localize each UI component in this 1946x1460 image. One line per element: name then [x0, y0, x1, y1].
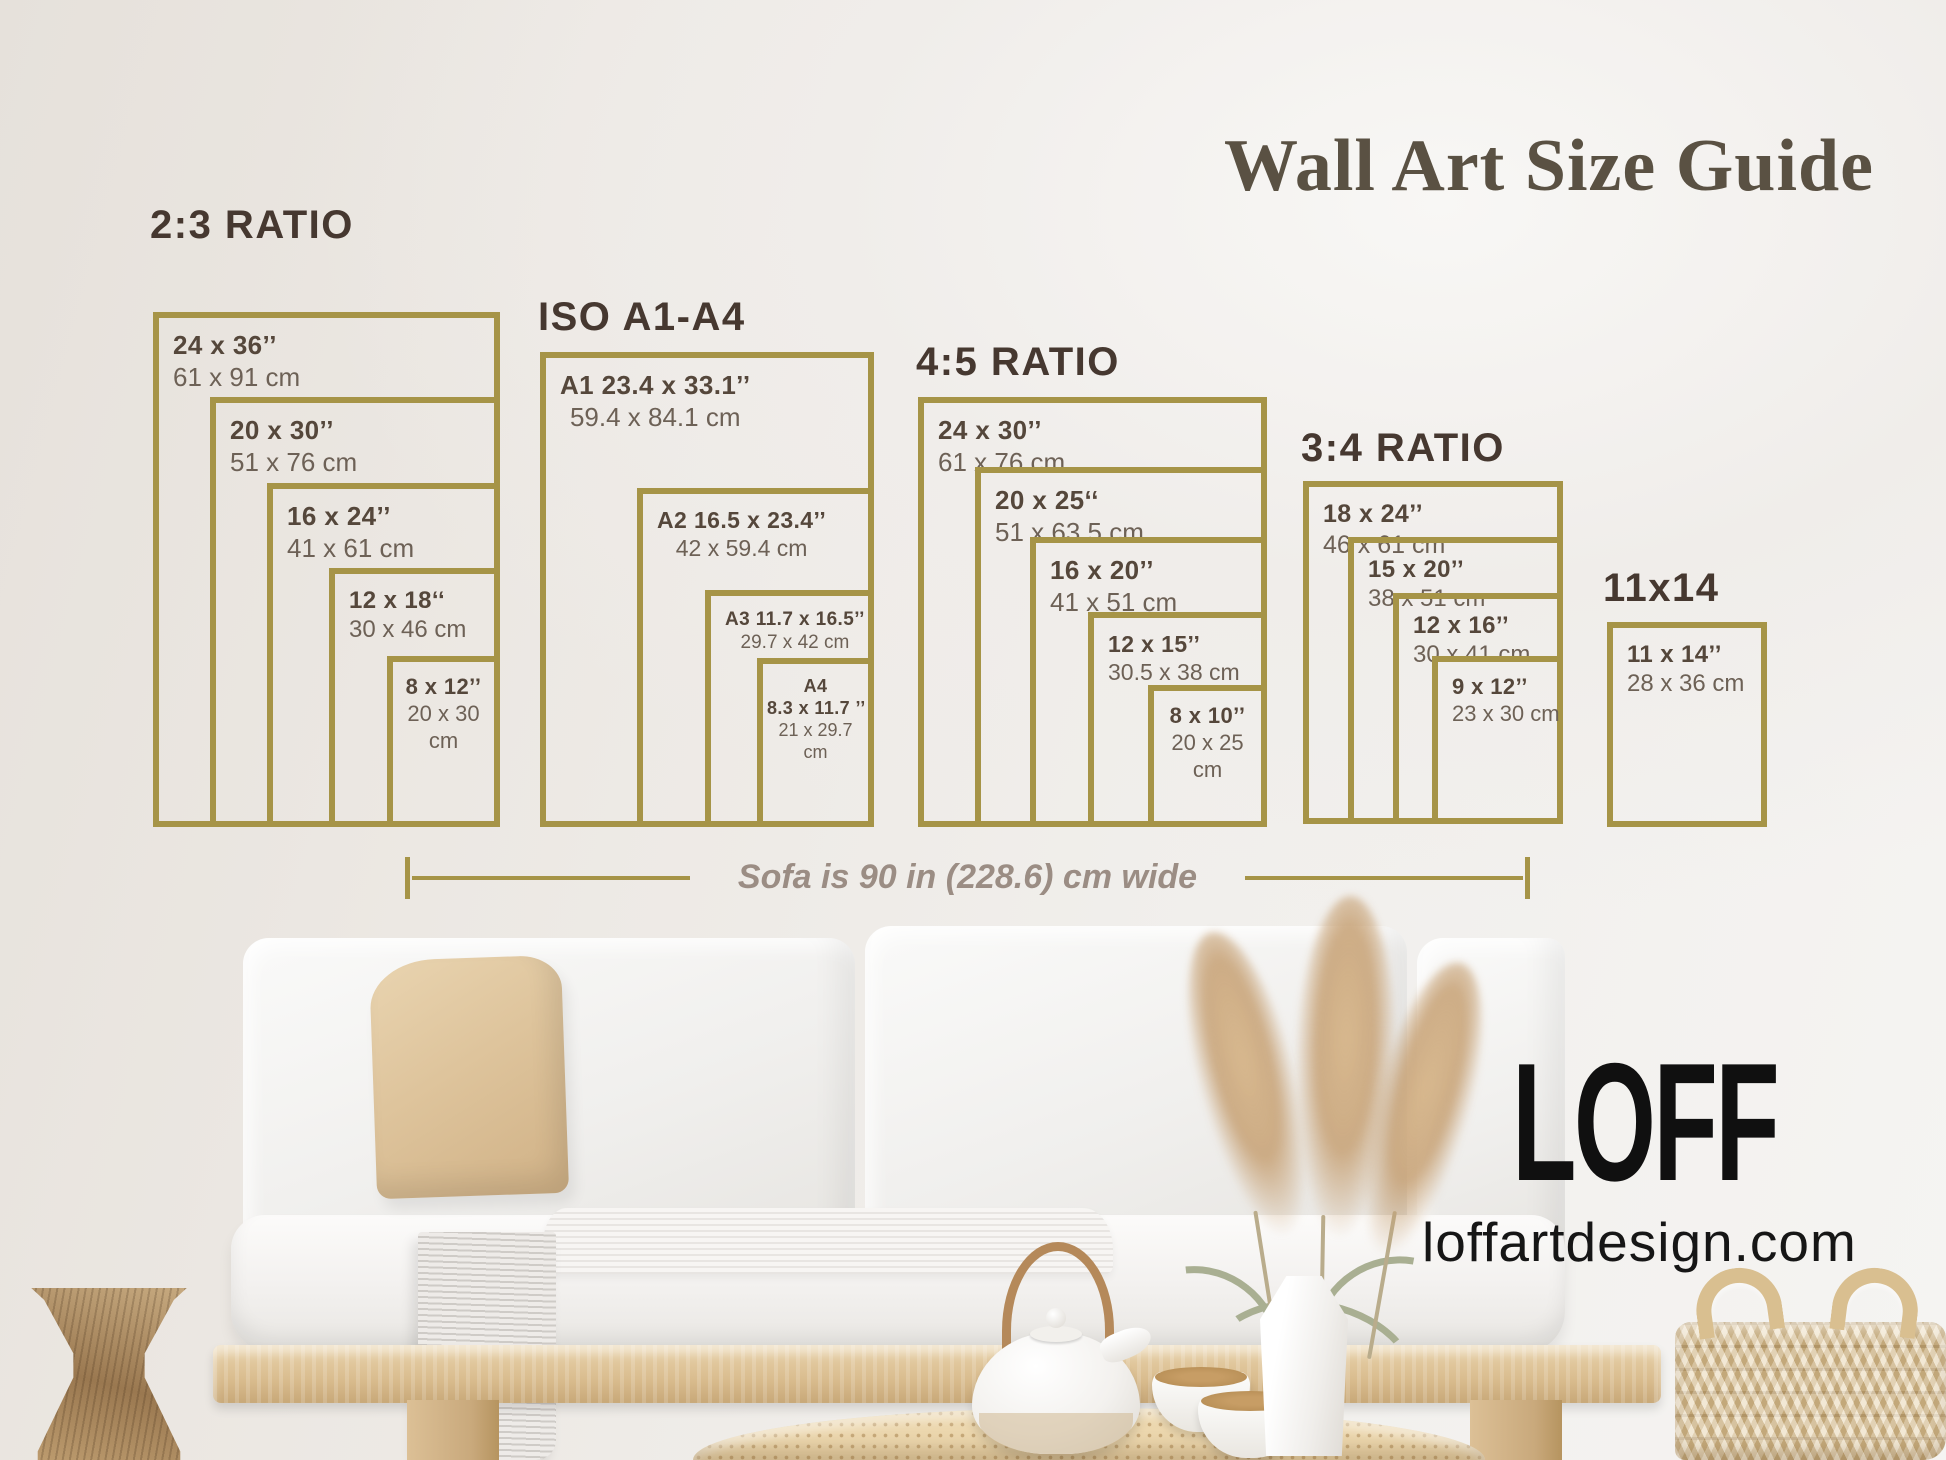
size-frame-label: 9 x 12’’23 x 30 cm [1438, 662, 1557, 740]
wall-art-size-guide-poster: Wall Art Size Guide 2:3 RATIO24 x 36’’61… [0, 0, 1946, 1460]
section-heading-3-4-ratio: 3:4 RATIO [1301, 426, 1505, 471]
size-frame-9-x-12: 9 x 12’’23 x 30 cm [1432, 656, 1563, 824]
size-frame-a4-8-3-x-11-7: A48.3 x 11.7 ’’21 x 29.7cm [757, 658, 874, 827]
size-frame-label: 11 x 14’’28 x 36 cm [1613, 628, 1761, 711]
section-heading-2-3-ratio: 2:3 RATIO [150, 203, 354, 248]
measure-tick-right [1525, 857, 1530, 899]
size-frame-label: 24 x 36’’61 x 91 cm [159, 318, 494, 405]
sofa-width-label: Sofa is 90 in (228.6) cm wide [738, 858, 1197, 897]
section-heading-11x14: 11x14 [1603, 566, 1720, 611]
section-heading-iso-a1-a4: ISO A1-A4 [538, 295, 746, 340]
brand-logo: LOFF [1512, 1026, 1777, 1219]
size-frame-label: A48.3 x 11.7 ’’21 x 29.7cm [763, 664, 868, 776]
size-frame-label: 8 x 12’’20 x 30cm [393, 662, 494, 766]
measure-tick-left [405, 857, 410, 899]
measure-line-right [1245, 876, 1523, 880]
size-frame-label: 20 x 30’’51 x 76 cm [216, 403, 494, 490]
size-frame-label: A3 11.7 x 16.5’’29.7 x 42 cm [711, 596, 868, 666]
sofa-width-annotation: Sofa is 90 in (228.6) cm wide [405, 852, 1530, 904]
section-heading-4-5-ratio: 4:5 RATIO [916, 340, 1120, 385]
size-frame-label: 8 x 10’’20 x 25cm [1154, 691, 1261, 795]
size-frame-label: 16 x 24’’41 x 61 cm [273, 489, 494, 576]
size-frame-label: A2 16.5 x 23.4’’42 x 59.4 cm [643, 494, 868, 574]
brand-website: loffartdesign.com [1422, 1210, 1857, 1274]
size-frame-8-x-12: 8 x 12’’20 x 30cm [387, 656, 500, 827]
size-frame-11-x-14: 11 x 14’’28 x 36 cm [1607, 622, 1767, 827]
size-frame-label: A1 23.4 x 33.1’’59.4 x 84.1 cm [546, 358, 868, 445]
measure-line-left [412, 876, 690, 880]
size-frame-8-x-10: 8 x 10’’20 x 25cm [1148, 685, 1267, 827]
size-frame-label: 12 x 18‘‘30 x 46 cm [335, 574, 494, 657]
